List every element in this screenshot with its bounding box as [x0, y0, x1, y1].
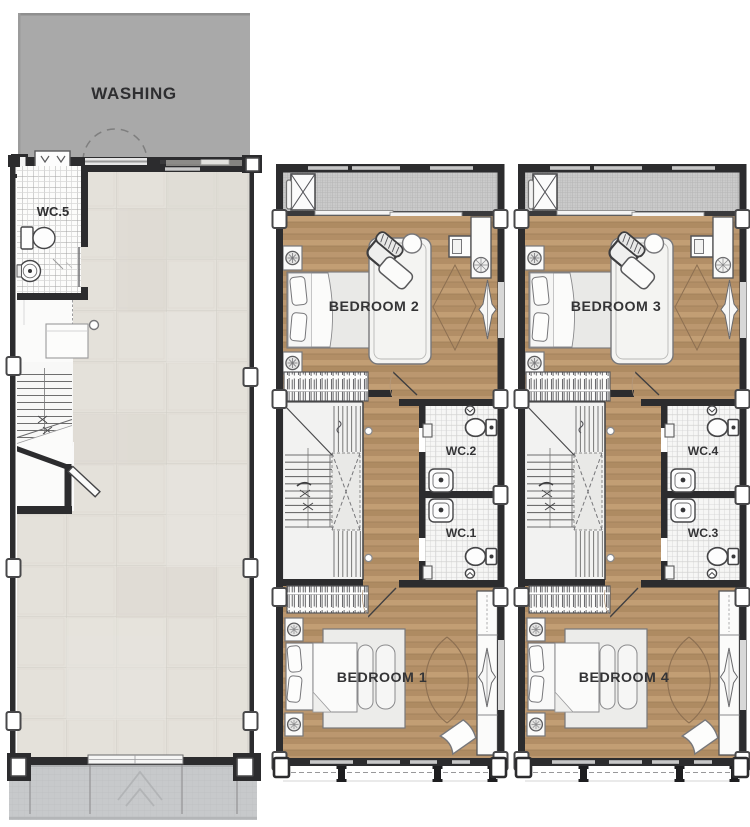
- svg-text:BEDROOM 4: BEDROOM 4: [579, 670, 669, 686]
- svg-text:BEDROOM 1: BEDROOM 1: [337, 670, 427, 686]
- svg-text:WC.3: WC.3: [688, 526, 719, 540]
- svg-text:WASHING: WASHING: [91, 84, 176, 103]
- svg-text:BEDROOM 3: BEDROOM 3: [571, 299, 661, 315]
- svg-text:WC.5: WC.5: [37, 204, 70, 219]
- svg-text:WC.4: WC.4: [688, 444, 719, 458]
- svg-text:WC.2: WC.2: [446, 444, 477, 458]
- svg-text:BEDROOM 2: BEDROOM 2: [329, 299, 419, 315]
- svg-text:WC.1: WC.1: [446, 526, 477, 540]
